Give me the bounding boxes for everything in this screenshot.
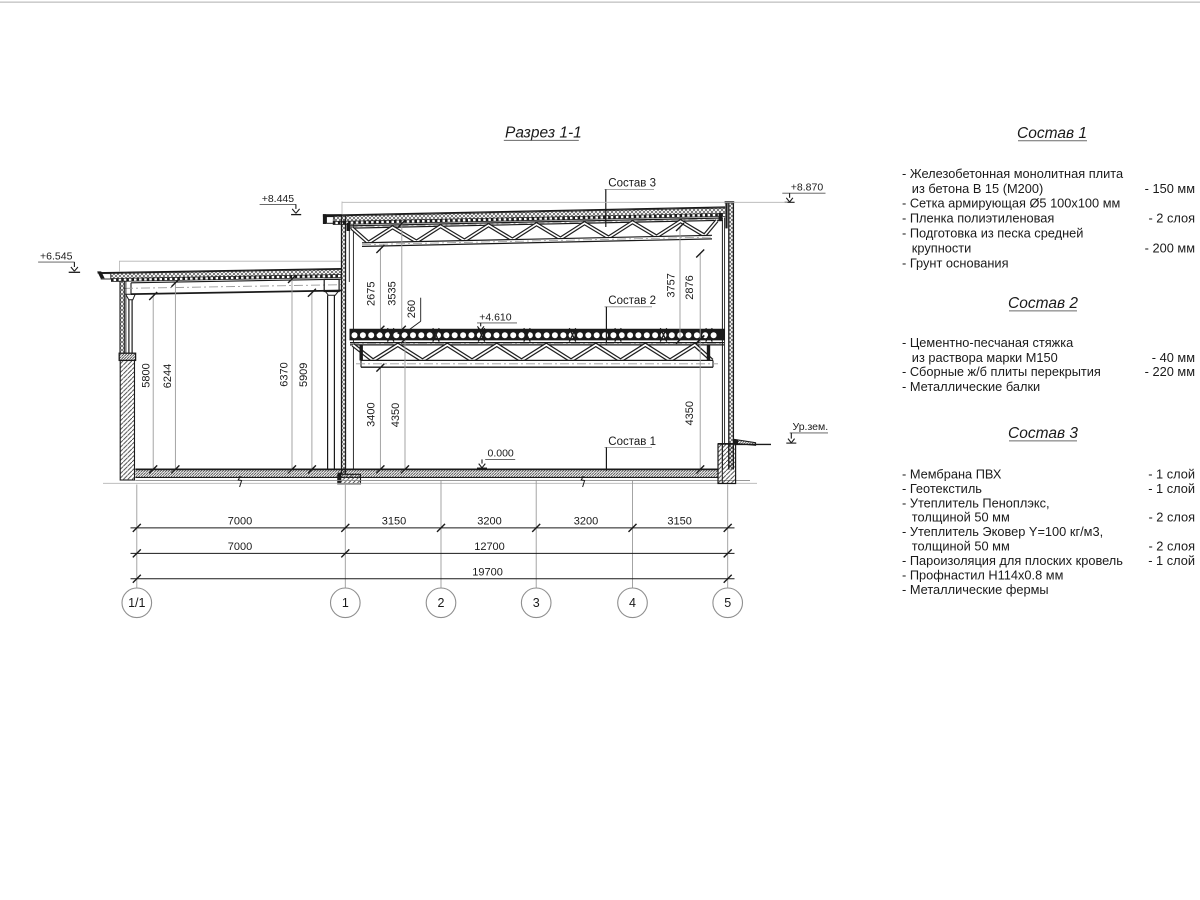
svg-text:- Цементно-песчаная стяжка: - Цементно-песчаная стяжка [902, 335, 1074, 350]
svg-text:Ур.зем.: Ур.зем. [793, 421, 829, 433]
svg-text:- 2 слоя: - 2 слоя [1148, 510, 1195, 525]
svg-text:3200: 3200 [574, 516, 598, 528]
svg-text:Состав 2: Состав 2 [1008, 295, 1078, 312]
svg-text:4350: 4350 [390, 403, 402, 427]
svg-text:- Металлические балки: - Металлические балки [902, 379, 1040, 394]
svg-text:- Пленка полиэтиленовая: - Пленка полиэтиленовая [902, 210, 1054, 225]
svg-text:2675: 2675 [365, 281, 377, 305]
svg-text:5: 5 [724, 596, 731, 610]
svg-text:+8.445: +8.445 [262, 193, 295, 205]
svg-text:5800: 5800 [141, 363, 153, 387]
svg-text:Разрез 1-1: Разрез 1-1 [505, 125, 582, 142]
svg-text:- Мембрана ПВХ: - Мембрана ПВХ [902, 467, 1002, 482]
svg-text:3757: 3757 [665, 273, 677, 297]
svg-text:- 2 слоя: - 2 слоя [1148, 210, 1195, 225]
svg-text:- Утеплитель Эковер Y=100 кг/м: - Утеплитель Эковер Y=100 кг/м3, [902, 524, 1103, 539]
svg-text:4: 4 [629, 596, 636, 610]
svg-text:толщиной 50 мм: толщиной 50 мм [912, 510, 1010, 525]
svg-text:+6.545: +6.545 [40, 251, 73, 263]
svg-text:5909: 5909 [298, 363, 310, 387]
svg-text:- 1 слой: - 1 слой [1148, 467, 1195, 482]
svg-text:2: 2 [438, 596, 445, 610]
svg-text:1/1: 1/1 [128, 596, 145, 610]
svg-text:- Пароизоляция для плоских кро: - Пароизоляция для плоских кровель [902, 553, 1123, 568]
svg-text:толщиной 50 мм: толщиной 50 мм [912, 539, 1010, 554]
svg-text:3150: 3150 [667, 516, 691, 528]
svg-text:7000: 7000 [228, 541, 252, 553]
svg-text:4350: 4350 [684, 401, 696, 425]
svg-text:3150: 3150 [382, 516, 406, 528]
svg-text:0.000: 0.000 [488, 447, 514, 459]
svg-text:- Профнастил Н114х0.8 мм: - Профнастил Н114х0.8 мм [902, 568, 1063, 583]
svg-text:Состав 3: Состав 3 [1008, 425, 1078, 442]
svg-text:1: 1 [342, 596, 349, 610]
svg-text:- 2 слоя: - 2 слоя [1148, 539, 1195, 554]
svg-text:- Утеплитель Пеноплэкс,: - Утеплитель Пеноплэкс, [902, 496, 1050, 511]
svg-text:12700: 12700 [474, 541, 505, 553]
svg-text:- 1 слой: - 1 слой [1148, 481, 1195, 496]
svg-text:19700: 19700 [472, 567, 503, 579]
svg-text:7000: 7000 [228, 516, 252, 528]
svg-text:- 200 мм: - 200 мм [1145, 241, 1195, 256]
svg-text:- 1 слой: - 1 слой [1148, 553, 1195, 568]
svg-text:из бетона В 15 (М200): из бетона В 15 (М200) [912, 181, 1043, 196]
svg-text:Состав 1: Состав 1 [1017, 125, 1087, 142]
svg-text:+4.610: +4.610 [479, 311, 512, 323]
svg-text:Состав 1: Состав 1 [608, 436, 656, 448]
svg-text:- Геотекстиль: - Геотекстиль [902, 481, 982, 496]
svg-text:- 220 мм: - 220 мм [1145, 364, 1195, 379]
svg-text:3535: 3535 [387, 281, 399, 305]
svg-text:Состав 2: Состав 2 [608, 295, 656, 307]
svg-text:- Подготовка из песка средней: - Подготовка из песка средней [902, 226, 1083, 241]
svg-text:- 150 мм: - 150 мм [1145, 181, 1195, 196]
svg-text:260: 260 [406, 300, 418, 318]
svg-text:из раствора марки М150: из раствора марки М150 [912, 350, 1058, 365]
svg-text:3: 3 [533, 596, 540, 610]
svg-text:3400: 3400 [365, 402, 377, 426]
svg-text:крупности: крупности [912, 241, 972, 256]
svg-text:- Сборные ж/б плиты перекрытия: - Сборные ж/б плиты перекрытия [902, 364, 1101, 379]
svg-text:- Железобетонная монолитная п: - Железобетонная монолитная плита [902, 166, 1124, 181]
svg-text:- Металлические фермы: - Металлические фермы [902, 582, 1049, 597]
svg-text:Состав 3: Состав 3 [608, 178, 656, 190]
svg-text:- Сетка армирующая Ø5 100х100: - Сетка армирующая Ø5 100х100 мм [902, 195, 1120, 210]
svg-text:+8.870: +8.870 [791, 182, 824, 194]
svg-text:3200: 3200 [477, 516, 501, 528]
svg-text:6244: 6244 [162, 364, 174, 388]
svg-text:- Грунт основания: - Грунт основания [902, 256, 1009, 271]
svg-text:- 40 мм: - 40 мм [1152, 350, 1195, 365]
svg-text:6370: 6370 [279, 362, 291, 386]
svg-text:2876: 2876 [684, 275, 696, 299]
